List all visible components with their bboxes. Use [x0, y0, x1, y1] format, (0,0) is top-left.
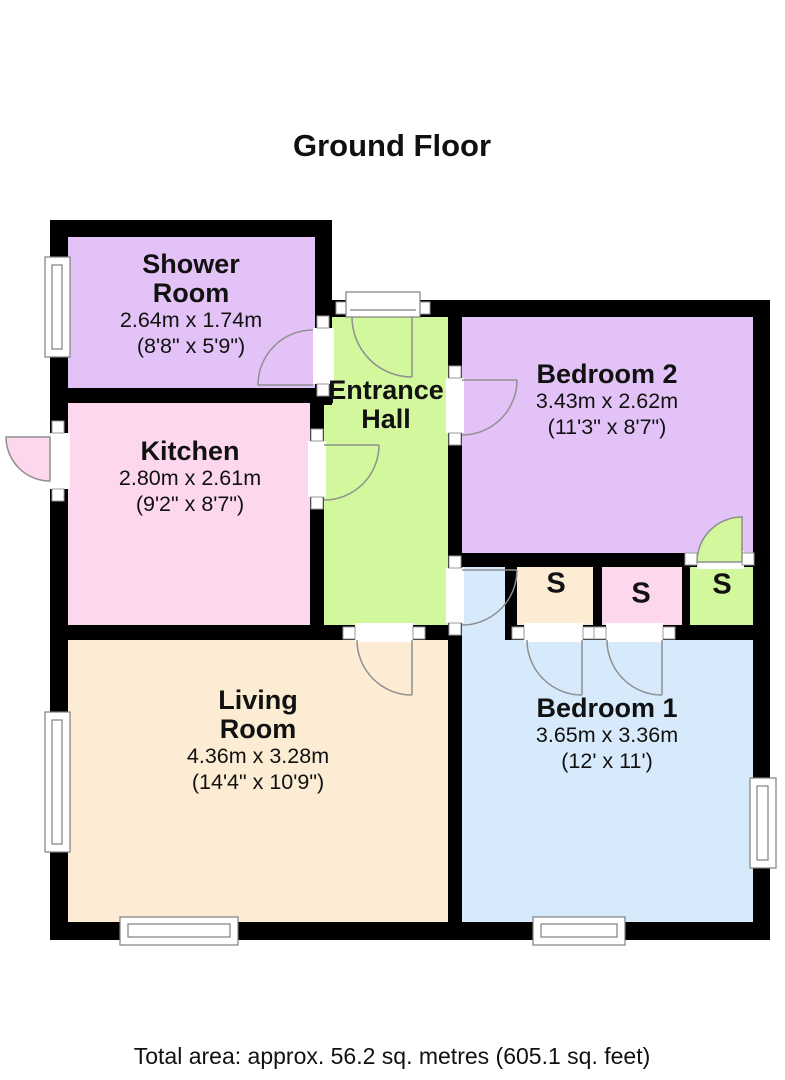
shower-room-label: Shower Room 2.64m x 1.74m (8'8" x 5'9"): [116, 250, 266, 359]
living-room-label: Living Room 4.36m x 3.28m (14'4" x 10'9"…: [187, 686, 329, 795]
total-area-text: Total area: approx. 56.2 sq. metres (605…: [134, 1043, 651, 1070]
storage-green-label: S: [712, 569, 731, 602]
room-dims-metric: 4.36m x 3.28m: [187, 744, 329, 770]
room-dims-metric: 3.43m x 2.62m: [536, 389, 678, 415]
opening-storage-cream: [524, 623, 583, 642]
bedroom1-label: Bedroom 1 3.65m x 3.36m (12' x 11'): [536, 694, 678, 774]
entrance-hall-area: [322, 308, 450, 627]
opening-kitchen-hall: [308, 441, 326, 497]
room-dims-metric: 2.80m x 2.61m: [119, 466, 261, 492]
entrance-hall-label: Entrance Hall: [306, 376, 466, 434]
room-dims-metric: 2.64m x 1.74m: [120, 308, 262, 334]
room-dims-imperial: (8'8" x 5'9"): [137, 334, 245, 360]
bedroom1-entry-area: [460, 565, 507, 642]
room-dims-metric: 3.65m x 3.36m: [536, 723, 678, 749]
opening-storage-pink: [606, 623, 663, 642]
wall-storage-div3: [682, 565, 690, 627]
front-door-threshold: [346, 292, 420, 317]
opening-hall-bedroom1: [446, 568, 464, 623]
room-dims-imperial: (12' x 11'): [561, 749, 652, 775]
kitchen-exterior-door: [6, 437, 50, 481]
plan-title: Ground Floor: [293, 128, 491, 164]
room-name: Entrance Hall: [306, 376, 466, 434]
wall-shower-kitchen: [50, 388, 333, 403]
bedroom1-area: [460, 638, 755, 924]
room-name: Bedroom 2: [536, 360, 677, 389]
room-name: Living Room: [188, 686, 328, 744]
opening-kitchen-exterior: [48, 433, 70, 489]
storage-cream-label: S: [546, 568, 565, 601]
wall-storage-div2: [593, 565, 602, 627]
storage-pink-label: S: [631, 578, 650, 611]
room-name: Kitchen: [140, 437, 239, 466]
opening-hall-living: [355, 623, 413, 642]
room-dims-imperial: (11'3" x 8'7"): [548, 415, 667, 441]
wall-top: [50, 220, 332, 237]
kitchen-label: Kitchen 2.80m x 2.61m (9'2" x 8'7"): [119, 437, 261, 517]
room-dims-imperial: (14'4" x 10'9"): [192, 770, 324, 796]
floor-plan: Ground Floor Shower Room 2.64m x 1.74m (…: [0, 0, 785, 1080]
room-dims-imperial: (9'2" x 8'7"): [136, 492, 244, 518]
room-name: Shower Room: [116, 250, 266, 308]
bedroom2-label: Bedroom 2 3.43m x 2.62m (11'3" x 8'7"): [536, 360, 678, 440]
wall-living-bedroom1: [448, 625, 462, 924]
room-name: Bedroom 1: [536, 694, 677, 723]
